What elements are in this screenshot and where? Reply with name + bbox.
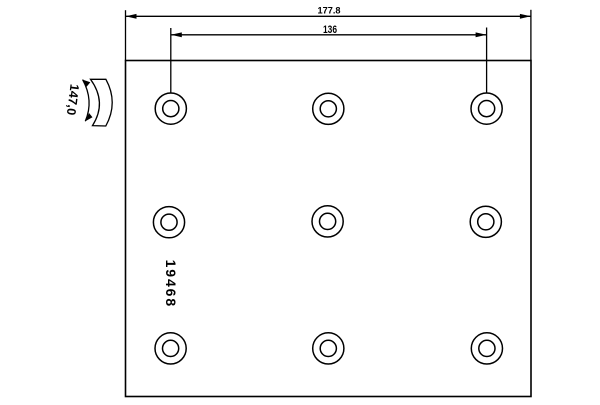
svg-text:136: 136 [323,24,337,36]
svg-text:177.8: 177.8 [318,6,341,17]
svg-text:19468: 19468 [163,260,179,308]
